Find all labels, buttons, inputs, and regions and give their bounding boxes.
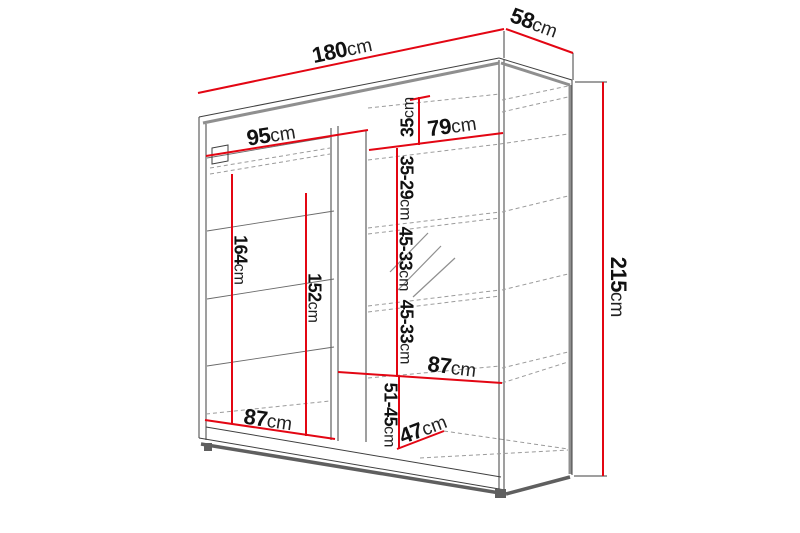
hidden-edge-dashed (368, 94, 500, 108)
dimension-label-left-hanging-height: 164cm (231, 235, 250, 285)
dimension-value: 51-45 (381, 383, 401, 427)
dimension-unit: cm (401, 97, 418, 118)
dimension-label-shelf-gap-2: 45-33cm (396, 227, 415, 292)
dimension-unit: cm (396, 270, 413, 291)
cabinet-foot (495, 489, 506, 498)
hidden-edge-dashed (502, 86, 568, 100)
dimension-label-mid-shelf-width: 87cm (426, 353, 477, 381)
hidden-edge-dashed (420, 450, 568, 458)
dimension-label-total-height: 215cm (607, 257, 629, 318)
dimension-unit: cm (265, 411, 293, 435)
dimension-label-left-inner-height: 152cm (305, 273, 324, 323)
cabinet-edge-line (199, 58, 499, 117)
dimension-value: 45-33 (396, 227, 416, 271)
hidden-edge-dashed (502, 196, 568, 212)
cabinet-shadow-edges (201, 444, 570, 494)
dimension-label-bottom-gap: 51-45cm (381, 383, 400, 448)
hidden-edge-dashed (502, 97, 568, 112)
wardrobe-diagram: 180cm58cm215cm95cm79cm35cm35-29cm45-33cm… (0, 0, 800, 533)
dimension-value: 45-33 (397, 300, 417, 344)
hidden-edge-dashed (500, 134, 568, 144)
hidden-edge-dashed (502, 274, 568, 290)
dimension-unit: cm (450, 114, 478, 138)
dimension-label-top-shelf-height: 35cm (399, 97, 418, 137)
hidden-edge-dashed (444, 431, 568, 449)
dimension-unit: cm (305, 302, 322, 323)
hidden-edge-dashed (368, 144, 500, 160)
cabinet-bottom-shadow (506, 477, 570, 494)
extension-lines (504, 31, 607, 476)
dimension-label-shelf-gap-3: 45-33cm (397, 300, 416, 365)
cabinet-thick-edge (501, 63, 570, 85)
dimension-unit: cm (231, 264, 248, 285)
dimension-value: 164 (231, 235, 251, 264)
cabinet-edge-line (199, 438, 505, 490)
shelf-front-edge (207, 347, 334, 366)
shelf-front-edge (207, 211, 334, 231)
dimension-unit: cm (397, 343, 414, 364)
dimension-unit: cm (269, 122, 297, 147)
cabinet-foot (204, 443, 212, 451)
dimension-unit: cm (397, 199, 414, 220)
cabinet-edge-line (499, 58, 572, 80)
dimension-value: 35-29 (397, 156, 417, 200)
dimension-value: 152 (305, 273, 325, 302)
dimension-unit: cm (450, 358, 478, 382)
dimension-label-shelf-gap-1: 35-29cm (397, 156, 416, 221)
dimension-value: 35 (398, 118, 418, 137)
dimension-value: 215 (606, 257, 631, 292)
mirror-hatch-stroke (413, 258, 455, 297)
dimension-unit: cm (381, 426, 398, 447)
dimension-unit: cm (606, 292, 627, 317)
